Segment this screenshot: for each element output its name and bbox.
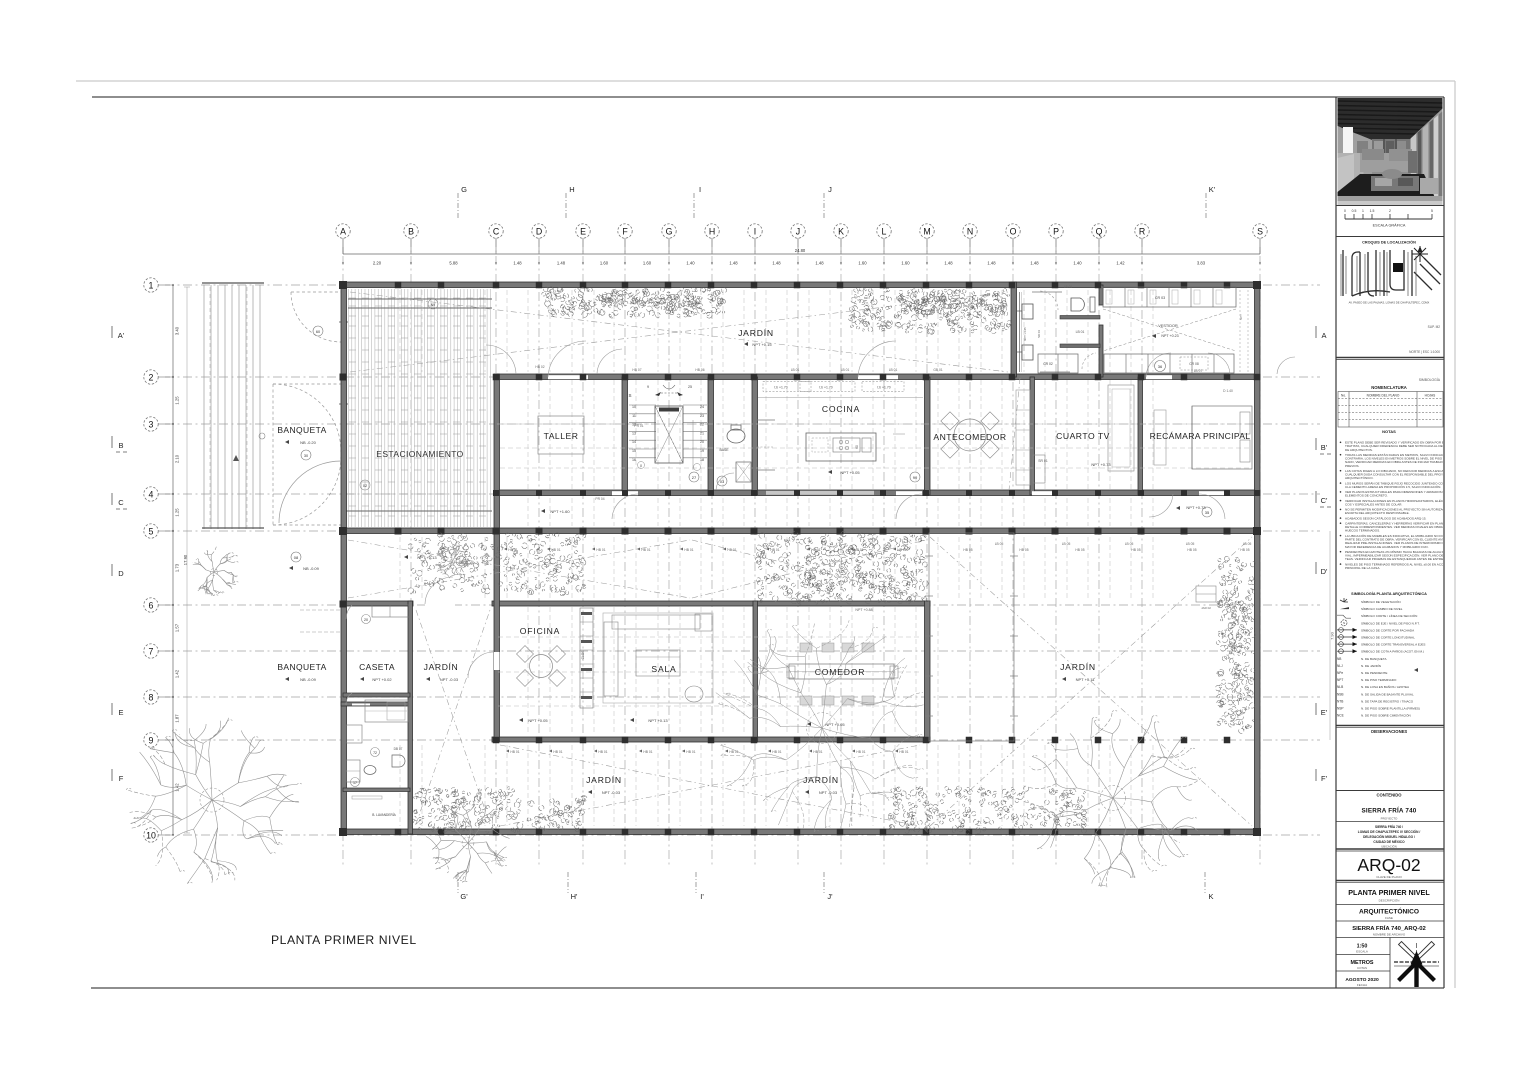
svg-text:JARDÍN: JARDÍN xyxy=(586,775,622,785)
svg-text:NPT: NPT xyxy=(1337,678,1343,682)
svg-text:1.48: 1.48 xyxy=(772,261,781,266)
svg-text:NPT +1.60: NPT +1.60 xyxy=(550,509,570,514)
svg-text:B: B xyxy=(118,441,123,450)
svg-text:J: J xyxy=(828,185,832,194)
svg-text:×: × xyxy=(969,261,972,266)
svg-text:1.25: 1.25 xyxy=(175,396,180,405)
svg-text:LB 01: LB 01 xyxy=(889,368,898,372)
svg-text:No.: No. xyxy=(1341,394,1346,398)
svg-text:HB 01: HB 01 xyxy=(856,750,865,754)
svg-text:NPT +0.73: NPT +0.73 xyxy=(1091,462,1111,467)
svg-text:21: 21 xyxy=(700,431,704,435)
svg-text:×: × xyxy=(538,261,541,266)
svg-text:×: × xyxy=(1012,261,1015,266)
svg-text:J: J xyxy=(796,226,800,236)
svg-text:PRINCIPAL DE LA CASA.: PRINCIPAL DE LA CASA. xyxy=(1345,566,1380,570)
svg-text:24.80: 24.80 xyxy=(795,248,806,253)
svg-text:ESTACIONAMIENTO: ESTACIONAMIENTO xyxy=(376,449,463,459)
svg-text:4: 4 xyxy=(149,489,154,499)
svg-text:HB 05: HB 05 xyxy=(1240,548,1249,552)
svg-text:NTB: NTB xyxy=(1337,699,1343,703)
svg-text:×: × xyxy=(172,492,175,497)
svg-text:NPT -0.03: NPT -0.03 xyxy=(819,790,838,795)
svg-text:13: 13 xyxy=(632,431,636,435)
svg-text:18: 18 xyxy=(700,458,704,462)
svg-text:HB 05: HB 05 xyxy=(1075,548,1084,552)
svg-text:1.60: 1.60 xyxy=(858,261,867,266)
svg-text:LB 01: LB 01 xyxy=(1064,285,1073,289)
svg-text:NPT +0.05: NPT +0.05 xyxy=(825,722,845,727)
svg-text:36: 36 xyxy=(1158,364,1163,369)
svg-text:K': K' xyxy=(1209,185,1216,194)
svg-text:B: B xyxy=(408,226,414,236)
svg-text:DB 07: DB 07 xyxy=(394,747,403,751)
svg-text:×: × xyxy=(1055,261,1058,266)
svg-text:1.40: 1.40 xyxy=(686,261,695,266)
svg-text:CR 08: CR 08 xyxy=(1189,362,1199,366)
svg-text:×: × xyxy=(1141,261,1144,266)
svg-text:H: H xyxy=(569,185,574,194)
svg-text:ACABADOS SEGÚN CATÁLOGO DE ACA: ACABADOS SEGÚN CATÁLOGO DE ACABADOS ARQ-… xyxy=(1345,515,1427,520)
svg-text:×: × xyxy=(668,261,671,266)
svg-text:PR 04: PR 04 xyxy=(595,497,604,501)
svg-text:E': E' xyxy=(1321,708,1328,717)
svg-text:A: A xyxy=(340,226,346,236)
svg-text:UBICACIÓN: UBICACIÓN xyxy=(1381,844,1397,849)
svg-text:C': C' xyxy=(1321,496,1328,505)
svg-text:NB -0.20: NB -0.20 xyxy=(300,440,317,445)
svg-text:CUARTO TV: CUARTO TV xyxy=(1056,431,1110,441)
svg-text:1.87: 1.87 xyxy=(175,714,180,723)
svg-text:72: 72 xyxy=(373,751,377,755)
svg-text:HB 01: HB 01 xyxy=(553,750,562,754)
svg-text:1.40: 1.40 xyxy=(1073,261,1082,266)
svg-text:E: E xyxy=(580,226,586,236)
svg-text:NB: NB xyxy=(1337,657,1341,661)
svg-text:NOMENCLATURA: NOMENCLATURA xyxy=(1371,385,1407,390)
svg-text:3: 3 xyxy=(149,419,154,429)
svg-text:0: 0 xyxy=(1344,209,1346,213)
svg-text:PR 01: PR 01 xyxy=(634,424,643,428)
svg-text:DESCRIPCIÓN: DESCRIPCIÓN xyxy=(1379,898,1400,903)
svg-text:HB 01: HB 01 xyxy=(684,548,693,552)
svg-text:SIERRA FRÍA 740: SIERRA FRÍA 740 xyxy=(1361,806,1416,815)
svg-text:N. DE BANQUETA: N. DE BANQUETA xyxy=(1361,657,1387,661)
svg-text:×: × xyxy=(926,261,929,266)
svg-text:3.83: 3.83 xyxy=(1197,261,1206,266)
svg-text:×: × xyxy=(495,261,498,266)
svg-text:NPT +0.23: NPT +0.23 xyxy=(1161,334,1178,338)
svg-text:NPT +0.11: NPT +0.11 xyxy=(1076,677,1096,682)
svg-text:J': J' xyxy=(827,892,833,901)
svg-text:15: 15 xyxy=(632,449,636,453)
svg-text:FASE: FASE xyxy=(1385,916,1393,920)
svg-text:NPT +0.02: NPT +0.02 xyxy=(372,677,392,682)
svg-text:16: 16 xyxy=(632,458,636,462)
svg-text:SÍMBOLO DE CORTE POR FACHADA: SÍMBOLO DE CORTE POR FACHADA xyxy=(1361,628,1415,632)
svg-text:DE ARQUITECTOS.: DE ARQUITECTOS. xyxy=(1345,448,1373,452)
svg-text:1.60: 1.60 xyxy=(643,261,652,266)
svg-text:2: 2 xyxy=(1389,209,1391,213)
svg-text:×: × xyxy=(172,833,175,838)
svg-text:G': G' xyxy=(460,892,468,901)
svg-text:×: × xyxy=(840,261,843,266)
svg-text:OFICINA: OFICINA xyxy=(520,626,560,636)
svg-text:1.60: 1.60 xyxy=(600,261,609,266)
svg-text:30: 30 xyxy=(304,454,308,458)
svg-text:D 1.40: D 1.40 xyxy=(1223,389,1233,393)
svg-text:t.b +1.70: t.b +1.70 xyxy=(774,386,787,390)
svg-text:BANQUETA: BANQUETA xyxy=(277,662,326,672)
svg-text:7.90: 7.90 xyxy=(1330,631,1335,640)
svg-text:NPT +1.45: NPT +1.45 xyxy=(1023,327,1027,341)
svg-text:ARQUITECTÓNICO.: ARQUITECTÓNICO. xyxy=(1345,475,1374,480)
svg-text:20: 20 xyxy=(700,440,704,444)
svg-text:1.73: 1.73 xyxy=(175,563,180,572)
svg-text:LB 01: LB 01 xyxy=(841,368,850,372)
svg-text:F: F xyxy=(119,774,124,783)
svg-text:11: 11 xyxy=(632,414,636,418)
svg-text:×: × xyxy=(1098,261,1101,266)
svg-text:G: G xyxy=(461,185,467,194)
svg-text:×: × xyxy=(342,261,345,266)
svg-text:0.5: 0.5 xyxy=(1352,209,1357,213)
svg-text:SÍMBOLO CAMBIO DE NIVEL: SÍMBOLO CAMBIO DE NIVEL xyxy=(1361,607,1403,611)
svg-text:ESCALA: ESCALA xyxy=(1356,950,1368,954)
svg-text:JARDÍN: JARDÍN xyxy=(424,662,459,672)
svg-text:ESCALA GRÁFICA: ESCALA GRÁFICA xyxy=(1373,224,1406,228)
svg-text:HB 01: HB 01 xyxy=(641,548,650,552)
svg-text:1.48: 1.48 xyxy=(987,261,996,266)
svg-text:03: 03 xyxy=(720,479,725,484)
svg-text:NPe: NPe xyxy=(1337,671,1343,675)
svg-text:FECHA: FECHA xyxy=(1357,983,1367,987)
svg-text:HB 05: HB 05 xyxy=(1019,548,1028,552)
svg-text:LB 07: LB 07 xyxy=(1194,369,1203,373)
svg-text:9: 9 xyxy=(647,385,649,389)
svg-text:COTAS: COTAS xyxy=(1357,966,1367,970)
svg-text:t.b +1.70: t.b +1.70 xyxy=(819,386,832,390)
svg-text:CASETA: CASETA xyxy=(359,662,395,672)
svg-text:G: G xyxy=(666,226,673,236)
svg-text:HB 05: HB 05 xyxy=(963,548,972,552)
svg-text:CLAVE DE PLANO: CLAVE DE PLANO xyxy=(1376,875,1402,879)
svg-text:DELEGACIÓN MIGUEL HIDALGO /: DELEGACIÓN MIGUEL HIDALGO / xyxy=(1363,834,1415,839)
svg-text:C: C xyxy=(118,498,124,507)
svg-text:SIERRA FRÍA 740_ARQ-02: SIERRA FRÍA 740_ARQ-02 xyxy=(1352,924,1426,932)
svg-text:CR 03: CR 03 xyxy=(1155,296,1165,300)
svg-text:6: 6 xyxy=(149,600,154,610)
svg-text:5: 5 xyxy=(149,526,154,536)
svg-text:1.48: 1.48 xyxy=(944,261,953,266)
svg-text:1.42: 1.42 xyxy=(1116,261,1125,266)
svg-text:CLA CEMENTO-ARENA EN PROPORCIÓ: CLA CEMENTO-ARENA EN PROPORCIÓN 1:5, SAL… xyxy=(1345,484,1441,489)
svg-text:A: A xyxy=(1321,331,1326,340)
svg-text:H': H' xyxy=(571,892,578,901)
svg-text:SALA: SALA xyxy=(651,664,676,674)
svg-text:C: C xyxy=(493,226,500,236)
svg-text:LB 05: LB 05 xyxy=(1125,542,1134,546)
svg-text:NSB: NSB xyxy=(1337,692,1344,696)
svg-text:NPT -0.03: NPT -0.03 xyxy=(440,677,459,682)
svg-text:CLOS: CLOS xyxy=(581,651,585,660)
svg-text:HB 01: HB 01 xyxy=(729,750,738,754)
svg-text:7: 7 xyxy=(149,646,154,656)
svg-text:HB 01: HB 01 xyxy=(899,750,908,754)
svg-text:R: R xyxy=(1139,226,1145,236)
svg-text:HB 06: HB 06 xyxy=(695,368,704,372)
svg-text:CROQUIS DE LOCALIZACIÓN: CROQUIS DE LOCALIZACIÓN xyxy=(1362,240,1416,245)
svg-text:02: 02 xyxy=(363,484,367,488)
svg-text:BANQUETA: BANQUETA xyxy=(277,425,326,435)
svg-text:24: 24 xyxy=(700,405,704,409)
svg-text:N. DE PISO SOBRE PLANTILLA (FI: N. DE PISO SOBRE PLANTILLA (FIRMES) xyxy=(1361,707,1420,711)
svg-text:MAYOR REFERENCIA DE ACABADOS Y: MAYOR REFERENCIA DE ACABADOS Y MOBILIARI… xyxy=(1345,545,1429,549)
svg-text:17: 17 xyxy=(353,781,357,785)
svg-text:GB 01: GB 01 xyxy=(933,368,943,372)
svg-text:N. DE PISO TERMINADO: N. DE PISO TERMINADO xyxy=(1361,678,1397,682)
svg-text:O: O xyxy=(1010,226,1017,236)
svg-text:RECÁMARA PRINCIPAL: RECÁMARA PRINCIPAL xyxy=(1150,431,1251,441)
svg-text:×: × xyxy=(172,738,175,743)
svg-text:NADO, VERIFICAR MEDIDAS EN OBR: NADO, VERIFICAR MEDIDAS EN OBRA ANTES DE… xyxy=(1345,460,1446,464)
svg-text:×: × xyxy=(172,283,175,288)
svg-text:A': A' xyxy=(118,331,125,340)
svg-text:1.60: 1.60 xyxy=(901,261,910,266)
svg-text:20: 20 xyxy=(364,618,368,622)
svg-text:SÍMBOLO DE EJE / NIVEL DE PISO: SÍMBOLO DE EJE / NIVEL DE PISO N.P.T. xyxy=(1361,621,1420,625)
svg-text:NSP: NSP xyxy=(1337,707,1344,711)
svg-text:×: × xyxy=(754,261,757,266)
svg-text:19: 19 xyxy=(700,449,704,453)
svg-text:PROYECTO: PROYECTO xyxy=(1381,817,1398,821)
svg-text:5: 5 xyxy=(1431,209,1433,213)
svg-text:SIERRA FRÍA 740 /: SIERRA FRÍA 740 / xyxy=(1375,824,1403,829)
svg-text:×: × xyxy=(711,261,714,266)
svg-text:3.40: 3.40 xyxy=(175,326,180,335)
svg-text:SIMBOLOGÍA: SIMBOLOGÍA xyxy=(1419,378,1441,382)
svg-text:CONTENIDO: CONTENIDO xyxy=(1376,793,1402,798)
svg-text:B. LAVANDERÍA: B. LAVANDERÍA xyxy=(372,813,396,817)
svg-text:CIUDAD DE MÉXICO: CIUDAD DE MÉXICO xyxy=(1373,839,1405,844)
svg-text:SÍMBOLO DE CORTE TRANSVERSAL A: SÍMBOLO DE CORTE TRANSVERSAL A EJES xyxy=(1361,643,1425,647)
svg-text:14: 14 xyxy=(632,440,636,444)
svg-text:5.88: 5.88 xyxy=(449,261,458,266)
svg-text:1.25: 1.25 xyxy=(175,508,180,517)
svg-text:N. DE SALIDA DE BAJANTE PLUVIA: N. DE SALIDA DE BAJANTE PLUVIAL xyxy=(1361,692,1414,696)
svg-text:NPT +0.88: NPT +0.88 xyxy=(855,608,872,612)
svg-text:N: N xyxy=(1343,621,1345,625)
svg-text:NPT: NPT xyxy=(1239,314,1243,320)
svg-text:I: I xyxy=(699,185,701,194)
svg-text:HB 05: HB 05 xyxy=(1187,548,1196,552)
svg-text:35: 35 xyxy=(1205,510,1210,515)
svg-text:HB 01: HB 01 xyxy=(686,750,695,754)
svg-text:HB 02: HB 02 xyxy=(535,365,544,369)
svg-text:I: I xyxy=(754,226,756,236)
svg-text:60: 60 xyxy=(316,330,320,334)
svg-text:23: 23 xyxy=(700,414,704,418)
svg-text:F: F xyxy=(622,226,628,236)
svg-text:JARDÍN: JARDÍN xyxy=(803,775,839,785)
svg-text:N. DE LOSA EN BAÑOS / AZOTEA: N. DE LOSA EN BAÑOS / AZOTEA xyxy=(1361,684,1410,689)
svg-text:×: × xyxy=(172,649,175,654)
svg-text:×: × xyxy=(624,261,627,266)
svg-text:×: × xyxy=(410,261,413,266)
svg-text:ARQ-02: ARQ-02 xyxy=(1357,855,1420,875)
svg-text:27: 27 xyxy=(692,475,697,480)
svg-text:HB 01: HB 01 xyxy=(643,750,652,754)
svg-text:D: D xyxy=(536,226,542,236)
svg-text:N. DE JARDÍN: N. DE JARDÍN xyxy=(1361,664,1381,668)
svg-text:N. DE PISO SOBRE CIMENTACIÓN: N. DE PISO SOBRE CIMENTACIÓN xyxy=(1361,713,1411,718)
svg-text:VESTIDOR: VESTIDOR xyxy=(1158,324,1178,328)
svg-text:I': I' xyxy=(700,892,704,901)
svg-text:N: N xyxy=(967,226,973,236)
svg-text:NLJ: NLJ xyxy=(1337,664,1343,668)
svg-text:SÍMBOLO DE CORTE LONGITUDINAL: SÍMBOLO DE CORTE LONGITUDINAL xyxy=(1361,636,1415,640)
svg-text:×: × xyxy=(172,695,175,700)
svg-text:PLANTA PRIMER NIVEL: PLANTA PRIMER NIVEL xyxy=(1348,888,1430,897)
svg-text:1.48: 1.48 xyxy=(815,261,824,266)
svg-text:Q: Q xyxy=(1096,226,1103,236)
svg-text:TALLER: TALLER xyxy=(544,431,579,441)
svg-text:SIMBOLOGÍA PLANTA ARQUITECTÓNI: SIMBOLOGÍA PLANTA ARQUITECTÓNICA xyxy=(1351,591,1427,596)
svg-text:×: × xyxy=(582,261,585,266)
svg-text:LB 01: LB 01 xyxy=(791,368,800,372)
svg-text:HB 07: HB 07 xyxy=(632,368,641,372)
svg-text:P: P xyxy=(1053,226,1059,236)
svg-text:HB 01: HB 01 xyxy=(510,750,519,754)
svg-text:8: 8 xyxy=(640,464,642,468)
svg-text:LB 05: LB 05 xyxy=(995,542,1004,546)
svg-text:COCINA: COCINA xyxy=(822,404,860,414)
svg-text:NB -0.09: NB -0.09 xyxy=(303,566,320,571)
svg-text:HB 01: HB 01 xyxy=(772,750,781,754)
svg-text:HOJAS: HOJAS xyxy=(1425,394,1436,398)
svg-text:LOMAS DE CHAPULTEPEC IV SECCIÓ: LOMAS DE CHAPULTEPEC IV SECCIÓN / xyxy=(1358,829,1421,834)
svg-text:S: S xyxy=(628,393,631,398)
svg-text:OBSERVACIONES: OBSERVACIONES xyxy=(1371,729,1408,734)
svg-text:SÍMBOLO DE COTA A PAÑOS (ACOT.: SÍMBOLO DE COTA A PAÑOS (ACOT. EN M.) xyxy=(1361,649,1424,654)
svg-text:1.48: 1.48 xyxy=(729,261,738,266)
svg-text:×: × xyxy=(172,529,175,534)
svg-text:SÍMBOLO DE VEGETACIÓN: SÍMBOLO DE VEGETACIÓN xyxy=(1361,599,1401,604)
svg-text:×: × xyxy=(797,261,800,266)
svg-text:10: 10 xyxy=(146,830,156,840)
svg-text:2.10: 2.10 xyxy=(175,454,180,463)
svg-text:CR 02: CR 02 xyxy=(1043,362,1053,366)
svg-text:1.48: 1.48 xyxy=(1030,261,1039,266)
svg-text:D': D' xyxy=(1321,567,1328,576)
svg-text:25: 25 xyxy=(688,385,692,389)
svg-text:SR 03: SR 03 xyxy=(1037,330,1041,338)
svg-text:×: × xyxy=(1259,261,1262,266)
svg-text:8: 8 xyxy=(149,692,154,702)
svg-text:E: E xyxy=(118,708,123,717)
svg-text:NOMBRE DE ARCHIVO: NOMBRE DE ARCHIVO xyxy=(1373,932,1406,936)
svg-text:N. DE TAPA DE REGISTRO / TINAC: N. DE TAPA DE REGISTRO / TINACO xyxy=(1361,699,1414,703)
svg-text:TEAS. VERIFICAR PRUEBAS DE EST: TEAS. VERIFICAR PRUEBAS DE ESTANQUEIDAD … xyxy=(1345,557,1449,561)
svg-text:×: × xyxy=(172,603,175,608)
svg-text:HB 01: HB 01 xyxy=(596,548,605,552)
svg-text:SUP. M2: SUP. M2 xyxy=(1428,325,1441,329)
svg-text:B': B' xyxy=(1321,443,1328,452)
svg-text:t.b +1.70: t.b +1.70 xyxy=(877,386,890,390)
svg-text:LB 01: LB 01 xyxy=(1076,330,1085,334)
svg-text:1.48: 1.48 xyxy=(513,261,522,266)
svg-text:M: M xyxy=(923,226,930,236)
svg-text:HB 01: HB 01 xyxy=(897,548,906,552)
svg-text:NPT +0.05: NPT +0.05 xyxy=(840,470,860,475)
svg-text:LB 05: LB 05 xyxy=(1062,542,1071,546)
svg-text:×: × xyxy=(172,375,175,380)
svg-text:JARDÍN: JARDÍN xyxy=(1060,662,1096,672)
svg-text:AV. PASEO DE LAS PALMAS, LOMAS: AV. PASEO DE LAS PALMAS, LOMAS DE CHAPUL… xyxy=(1349,301,1430,305)
svg-text:NORTE | ESC 1:1000: NORTE | ESC 1:1000 xyxy=(1409,350,1440,354)
svg-text:NPT +0.73: NPT +0.73 xyxy=(1186,505,1206,510)
svg-text:1: 1 xyxy=(149,280,154,290)
svg-text:N. DE PENDIENTE: N. DE PENDIENTE xyxy=(1361,671,1387,675)
svg-text:PREVIOS.: PREVIOS. xyxy=(1345,464,1360,468)
svg-text:K: K xyxy=(1208,892,1213,901)
svg-text:1.57: 1.57 xyxy=(175,623,180,632)
svg-text:K: K xyxy=(838,226,844,236)
svg-text:08: 08 xyxy=(294,555,299,560)
svg-text:NOTAS: NOTAS xyxy=(1382,429,1396,434)
svg-text:NCE: NCE xyxy=(1337,714,1344,718)
svg-text:HB 01: HB 01 xyxy=(598,750,607,754)
svg-text:LB 05: LB 05 xyxy=(1186,542,1195,546)
svg-text:S: S xyxy=(1257,226,1263,236)
svg-text:ELEMENTOS DE CONCRETO.: ELEMENTOS DE CONCRETO. xyxy=(1345,494,1388,498)
svg-text:D: D xyxy=(118,569,124,578)
svg-text:1.42: 1.42 xyxy=(175,669,180,678)
svg-text:JAR 02: JAR 02 xyxy=(1201,606,1211,610)
svg-text:22: 22 xyxy=(700,423,704,427)
svg-text:60: 60 xyxy=(855,445,859,449)
svg-text:2.20: 2.20 xyxy=(373,261,382,266)
svg-text:1.5: 1.5 xyxy=(1370,209,1375,213)
svg-text:1: 1 xyxy=(1362,209,1364,213)
svg-text:NB -0.09: NB -0.09 xyxy=(300,677,317,682)
svg-text:JARDÍN: JARDÍN xyxy=(738,328,774,338)
svg-text:COS Y ESPECIALES ANTES DE COLA: COS Y ESPECIALES ANTES DE COLAR. xyxy=(1345,503,1402,507)
svg-text:F': F' xyxy=(1321,774,1328,783)
svg-text:1.48: 1.48 xyxy=(557,261,566,266)
svg-text:×: × xyxy=(172,422,175,427)
svg-text:L: L xyxy=(882,226,887,236)
svg-text:NOMBRE DEL PLANO: NOMBRE DEL PLANO xyxy=(1367,394,1400,398)
svg-text:90: 90 xyxy=(913,475,918,480)
svg-text:SÍMBOLO CORTE / LÍNEA DE SECCI: SÍMBOLO CORTE / LÍNEA DE SECCIÓN xyxy=(1361,613,1417,618)
svg-text:PLANTA PRIMER NIVEL: PLANTA PRIMER NIVEL xyxy=(271,933,417,947)
svg-text:SR 01: SR 01 xyxy=(1038,459,1048,463)
svg-text:NLB: NLB xyxy=(1337,685,1343,689)
svg-text:NPT -0.03: NPT -0.03 xyxy=(602,790,621,795)
svg-text:ARQUITECTÓNICO: ARQUITECTÓNICO xyxy=(1359,907,1419,916)
svg-text:ESCRITA DEL ARQUITECTO RESPONS: ESCRITA DEL ARQUITECTO RESPONSABLE. xyxy=(1345,511,1410,515)
svg-text:HUECOS TERMINADOS.: HUECOS TERMINADOS. xyxy=(1345,529,1380,533)
svg-text:NPT +0.13: NPT +0.13 xyxy=(648,718,668,723)
svg-text:×: × xyxy=(883,261,886,266)
svg-text:10: 10 xyxy=(632,405,636,409)
svg-text:2: 2 xyxy=(149,372,154,382)
svg-text:HB 05: HB 05 xyxy=(1131,548,1140,552)
svg-text:BASE: BASE xyxy=(719,448,729,452)
svg-text:ANTECOMEDOR: ANTECOMEDOR xyxy=(933,432,1006,442)
svg-text:9: 9 xyxy=(149,735,154,745)
